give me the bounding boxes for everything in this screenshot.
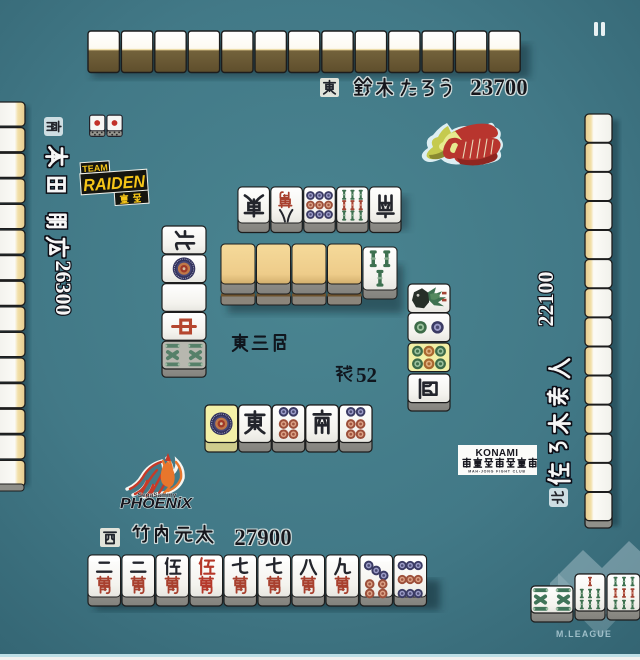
svg-text:26300: 26300: [51, 261, 76, 316]
svg-text:M.LEAGUE: M.LEAGUE: [556, 629, 612, 639]
svg-text:KONAMI: KONAMI: [476, 448, 519, 459]
svg-text:22100: 22100: [533, 272, 558, 327]
svg-text:MAH-JONG FIGHT CLUB: MAH-JONG FIGHT CLUB: [468, 470, 526, 474]
svg-text:PHOENiX: PHOENiX: [120, 495, 193, 512]
svg-text:52: 52: [356, 363, 377, 387]
svg-text:23700: 23700: [470, 75, 528, 100]
svg-text:27900: 27900: [234, 525, 292, 550]
